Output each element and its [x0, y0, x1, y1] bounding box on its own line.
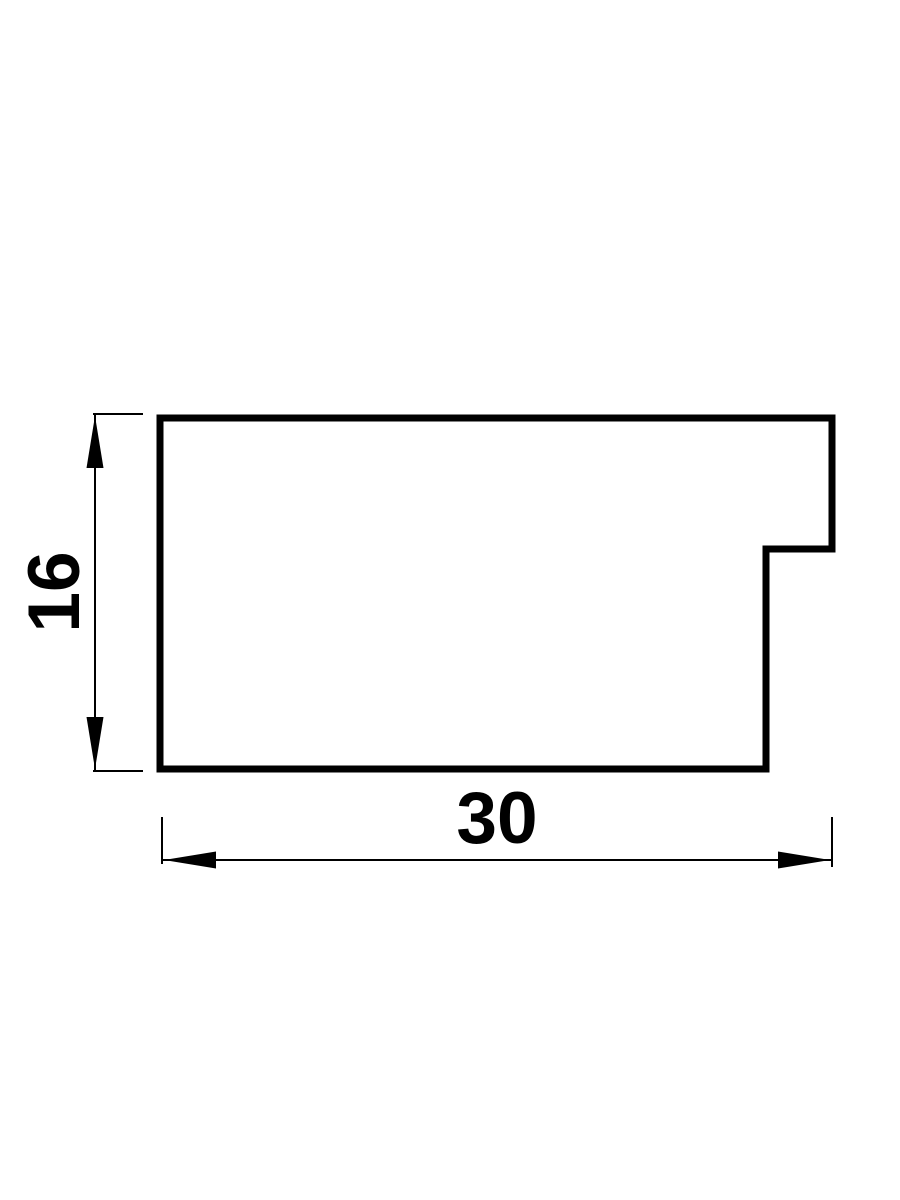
drawing-canvas: 16 30 — [0, 0, 900, 1200]
arrowhead-down-icon — [87, 717, 104, 769]
arrowhead-up-icon — [87, 416, 104, 468]
arrowhead-left-icon — [164, 852, 216, 869]
height-dimension: 16 — [14, 414, 143, 771]
arrowhead-right-icon — [778, 852, 830, 869]
profile-drawing-svg: 16 30 — [0, 0, 900, 1200]
width-dimension-label: 30 — [456, 778, 537, 859]
height-dimension-label: 16 — [14, 551, 95, 632]
profile-outline — [160, 418, 832, 769]
width-dimension: 30 — [162, 778, 832, 869]
